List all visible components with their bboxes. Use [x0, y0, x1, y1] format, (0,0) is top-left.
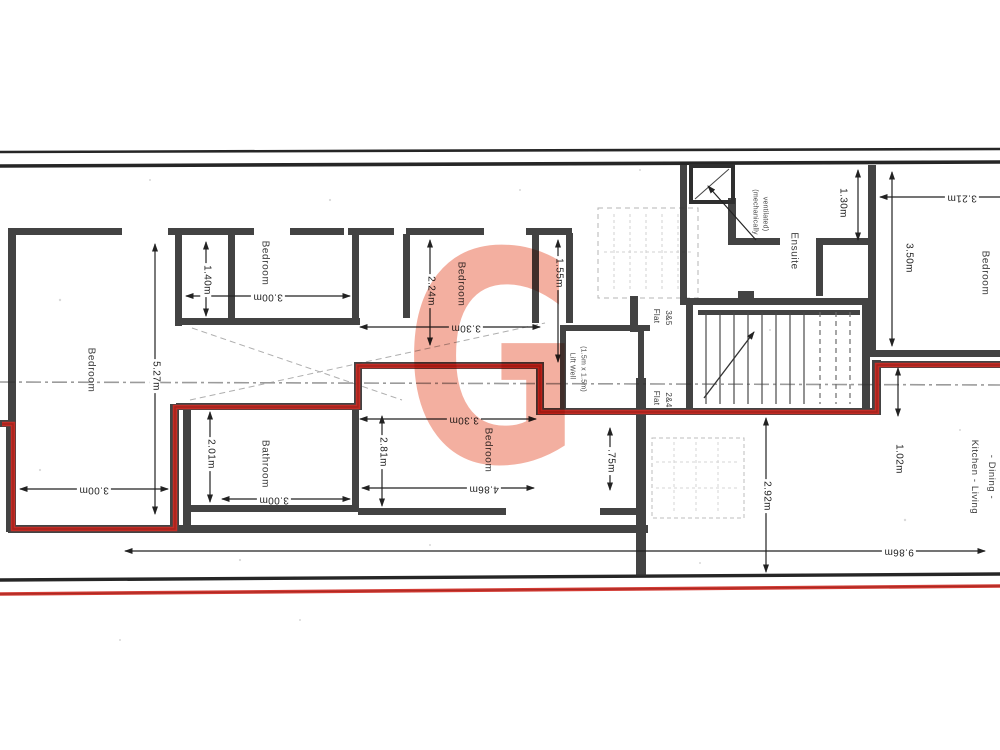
room-label-bedroom-left: Bedroom [85, 348, 96, 393]
room-label-kitchen-living: Kitchen - Living [969, 440, 979, 515]
dim-label-1-40m: 1.40m [201, 263, 212, 297]
dim-label-3-00m-top: 3.00m [251, 291, 285, 302]
room-label-ensuite: Ensuite [788, 232, 799, 270]
room-label-bedroom-right: Bedroom [979, 251, 990, 296]
void-hatch [190, 323, 545, 400]
dim-label-2-01m: 2.01m [205, 437, 216, 471]
dim-label-3-00m-left: 3.00m [77, 484, 111, 495]
room-label-dining: - Dining - [986, 455, 996, 500]
lift-well-size-note: (1.5m x 1.5m) [579, 346, 586, 392]
dim-label-3-30m-bot: 3.30m [447, 414, 481, 425]
room-label-lift-well: Lift Well [568, 353, 575, 380]
flat-label-upper-word: Flat [652, 309, 660, 324]
dim-label-75m: .75m [605, 447, 616, 475]
room-label-bathroom: Bathroom [259, 440, 270, 488]
room-label-bedroom-bottom-mid: Bedroom [482, 428, 493, 473]
dimension-lines [20, 170, 1000, 572]
dim-label-9-86m: 9.86m [882, 546, 916, 557]
dim-label-3-21m: 3.21m [945, 192, 979, 203]
scanned-floorplan-page: Bedroom Bedroom Bedroom Bedroom Bathroom… [0, 0, 1000, 750]
flat-label-lower-num: 2&4 [664, 392, 672, 407]
dim-label-3-50m: 3.50m [903, 241, 914, 275]
dim-label-1-30m: 1.30m [837, 186, 848, 220]
dim-label-2-92m: 2.92m [761, 479, 772, 513]
mech-vent-note-line1: (mechanically [751, 189, 758, 234]
dim-label-2-24m: 2.24m [425, 274, 436, 308]
flat-label-upper-num: 3&5 [664, 310, 672, 325]
shower-box [691, 166, 733, 202]
dim-label-1-02m: 1.02m [893, 442, 904, 476]
stairs [704, 312, 850, 404]
stair-direction-arrow [704, 332, 754, 398]
dim-label-3-30m-top: 3.30m [449, 322, 483, 333]
room-label-bedroom-top-mid: Bedroom [259, 241, 270, 286]
room-label-bedroom-mid: Bedroom [455, 262, 466, 307]
dim-label-4-86m: 4.86m [467, 483, 501, 494]
dim-label-3-00m-bath: 3.00m [257, 494, 291, 505]
dim-label-1-55m: 1.55m [553, 256, 564, 290]
dashed-kitchen-units [652, 438, 744, 518]
mech-vent-note-line2: ventilated) [761, 197, 768, 232]
flat-label-lower-word: Flat [652, 391, 660, 406]
dim-label-2-81m: 2.81m [377, 435, 388, 469]
dim-label-5-27m: 5.27m [150, 359, 161, 393]
red-boundary [0, 365, 1000, 594]
